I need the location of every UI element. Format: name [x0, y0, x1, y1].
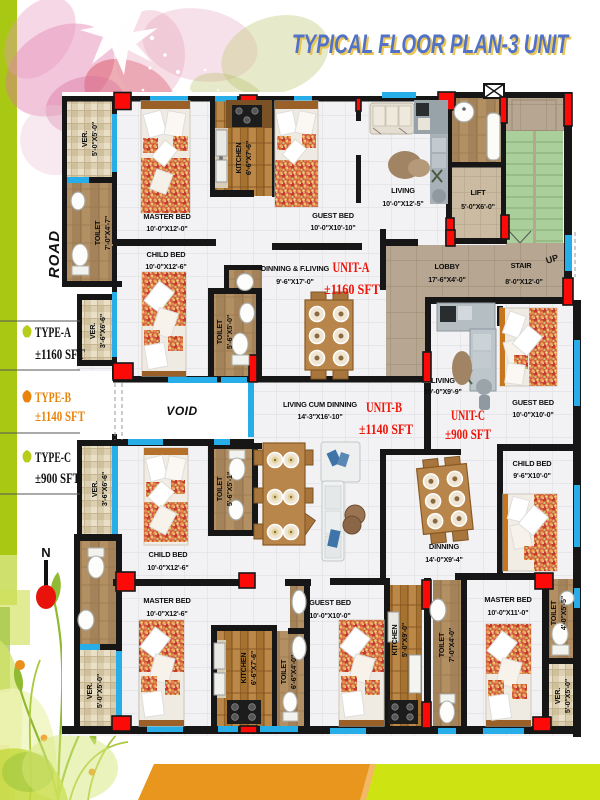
svg-text:5'-0"X6'-0": 5'-0"X6'-0"	[461, 203, 495, 211]
svg-text:DINNING & F.LIVING: DINNING & F.LIVING	[261, 264, 330, 273]
svg-text:GUEST BED: GUEST BED	[312, 211, 355, 220]
svg-text:10'-0"X12'-6": 10'-0"X12'-6"	[146, 610, 187, 618]
svg-text:9'-6"X17'-0": 9'-6"X17'-0"	[276, 278, 313, 286]
svg-text:10'-0"X12'-6": 10'-0"X12'-6"	[145, 263, 186, 271]
svg-text:DINNING: DINNING	[429, 542, 460, 551]
svg-text:10'-0"X12'-0": 10'-0"X12'-0"	[146, 225, 187, 233]
svg-text:LOBBY: LOBBY	[434, 262, 459, 271]
svg-text:TOILET4'-0"X5'-5": TOILET4'-0"X5'-5"	[549, 596, 568, 630]
svg-text:TYPE-B: TYPE-B	[35, 390, 71, 406]
svg-text:TOILET5'-6"X5'-0": TOILET5'-6"X5'-0"	[215, 315, 234, 349]
svg-text:N: N	[41, 545, 50, 560]
svg-text:TOILET7'-0"X4'-0": TOILET7'-0"X4'-0"	[437, 628, 456, 662]
svg-text:ROAD: ROAD	[46, 230, 63, 278]
svg-text:±1160 SFT: ±1160 SFT	[324, 282, 380, 298]
svg-text:10'-0"X10'-0": 10'-0"X10'-0"	[309, 612, 350, 620]
svg-text:±1160 SFT: ±1160 SFT	[35, 347, 85, 363]
svg-text:TOILET5'-6"X5'-1": TOILET5'-6"X5'-1"	[215, 472, 234, 506]
svg-text:VOID: VOID	[166, 404, 197, 418]
svg-text:STAIR: STAIR	[511, 261, 533, 270]
svg-text:10'-0"X10'-10": 10'-0"X10'-10"	[310, 224, 355, 232]
svg-text:CHILD BED: CHILD BED	[149, 550, 189, 559]
svg-text:GUEST BED: GUEST BED	[512, 398, 555, 407]
svg-text:UNIT-B: UNIT-B	[366, 400, 402, 416]
svg-text:CHILD BED: CHILD BED	[147, 250, 187, 259]
svg-text:KITCHEN6'-6"X7'-6": KITCHEN6'-6"X7'-6"	[239, 651, 258, 685]
svg-text:UNIT-C: UNIT-C	[451, 408, 485, 424]
svg-text:10'-0"X12'-6": 10'-0"X12'-6"	[147, 564, 188, 572]
svg-text:LIVING: LIVING	[431, 376, 455, 385]
svg-text:14'-0"X9'-4": 14'-0"X9'-4"	[425, 556, 462, 564]
svg-text:MASTER BED: MASTER BED	[143, 596, 191, 605]
svg-text:TYPE-A: TYPE-A	[35, 325, 71, 341]
svg-text:GUEST BED: GUEST BED	[309, 598, 352, 607]
svg-text:TOILET6'-6"X4'-0": TOILET6'-6"X4'-0"	[279, 655, 298, 689]
svg-text:±900 SFT: ±900 SFT	[35, 471, 80, 487]
svg-text:17'-6"X4'-0": 17'-6"X4'-0"	[428, 276, 465, 284]
svg-text:LIVING CUM DINNING: LIVING CUM DINNING	[283, 400, 357, 409]
svg-text:MASTER BED: MASTER BED	[484, 595, 532, 604]
svg-text:14'-3"X16'-10": 14'-3"X16'-10"	[297, 413, 342, 421]
svg-text:±1140 SFT: ±1140 SFT	[35, 409, 85, 425]
svg-text:10'-0"X11'-0": 10'-0"X11'-0"	[488, 609, 529, 617]
svg-text:KITCHEN5'-0"X9'-0": KITCHEN5'-0"X9'-0"	[390, 623, 409, 657]
svg-text:10'-0"X12'-5": 10'-0"X12'-5"	[382, 200, 423, 208]
svg-text:KITCHEN6'-6"X7'-6": KITCHEN6'-6"X7'-6"	[234, 141, 253, 175]
svg-text:TYPE-C: TYPE-C	[35, 450, 71, 466]
svg-text:9'-6"X10'-0": 9'-6"X10'-0"	[513, 472, 550, 480]
svg-text:MASTER BED: MASTER BED	[143, 212, 191, 221]
svg-text:±1140 SFT: ±1140 SFT	[359, 422, 413, 438]
svg-text:LIFT: LIFT	[471, 188, 487, 197]
svg-text:TYPICAL FLOOR PLAN-3 UNIT: TYPICAL FLOOR PLAN-3 UNIT	[292, 29, 570, 59]
svg-text:UNIT-A: UNIT-A	[333, 260, 370, 276]
svg-text:CHILD BED: CHILD BED	[513, 459, 553, 468]
svg-text:TOILET7'-0"X4'-7": TOILET7'-0"X4'-7"	[93, 216, 112, 250]
svg-text:10'-0"X9'-9": 10'-0"X9'-9"	[424, 388, 461, 396]
svg-text:±900 SFT: ±900 SFT	[445, 427, 491, 443]
svg-text:8'-0"X12'-0": 8'-0"X12'-0"	[505, 278, 542, 286]
svg-text:LIVING: LIVING	[391, 186, 415, 195]
svg-text:10'-0"X10'-0": 10'-0"X10'-0"	[512, 411, 553, 419]
